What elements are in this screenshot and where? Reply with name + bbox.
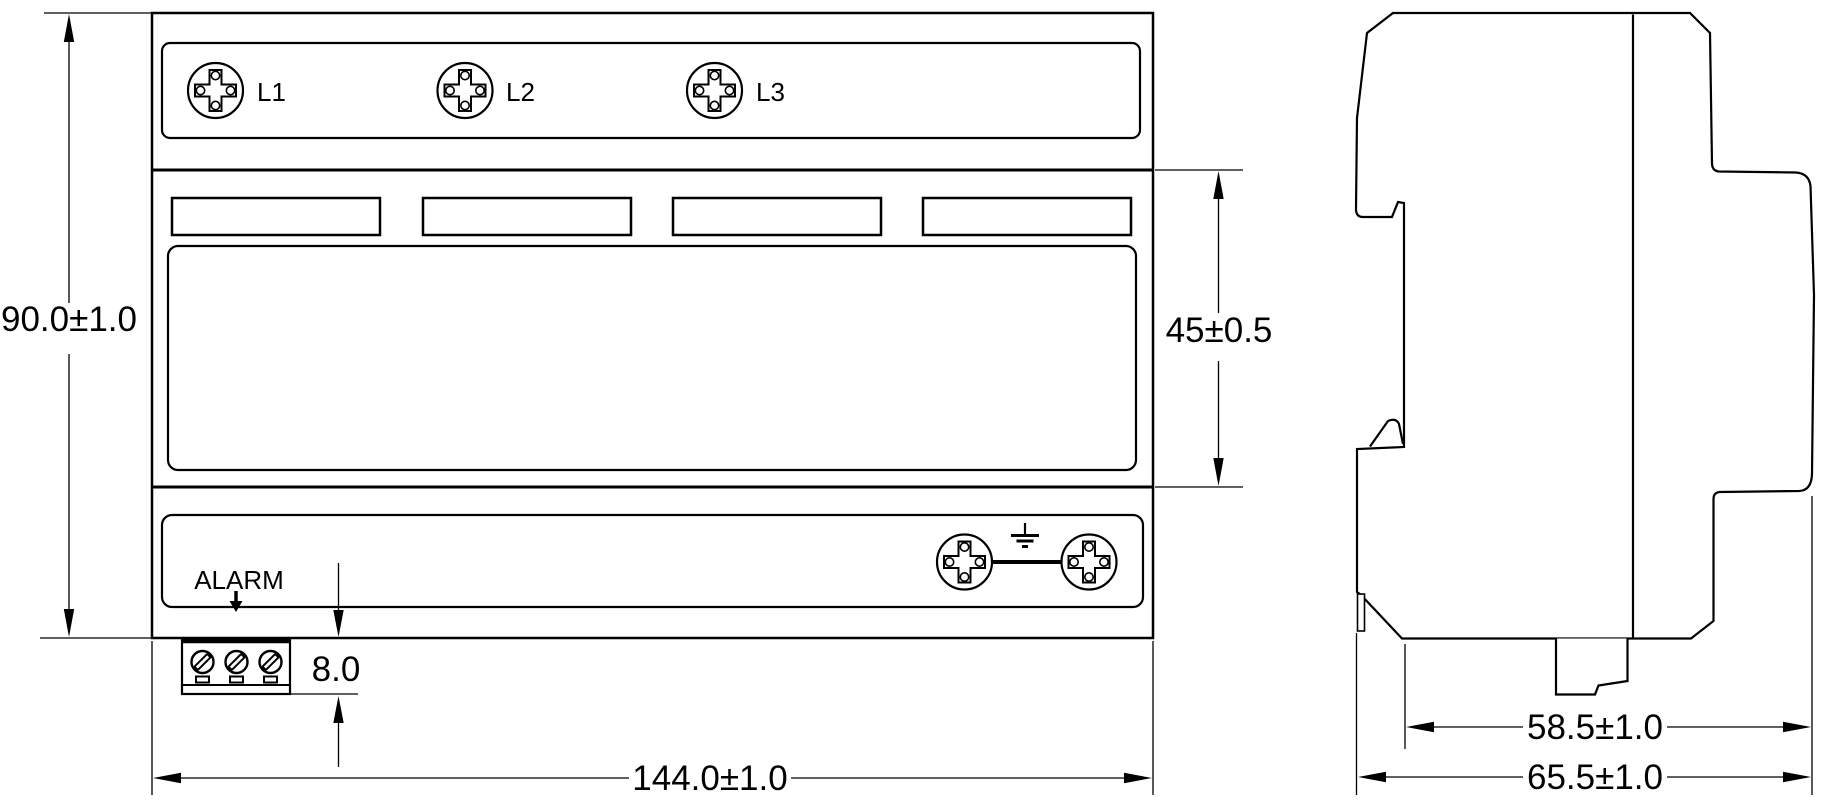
- phase-screw-l3-icon: [687, 63, 742, 118]
- dim-text-overall-depth: 65.5±1.0: [1527, 758, 1663, 797]
- dimension-drawing: L1 L2 L3 ALARM: [0, 0, 1821, 802]
- dim-arrow-right: [1124, 773, 1152, 783]
- dim-text-overall-width: 144.0±1.0: [632, 759, 787, 798]
- terminal-screw-2-icon: [226, 651, 248, 673]
- window-slot-2: [423, 198, 631, 235]
- front-view: L1 L2 L3 ALARM: [152, 13, 1153, 694]
- dim-arrow-left: [1358, 772, 1386, 782]
- terminal-wire-slot-2: [230, 677, 243, 683]
- alarm-label: ALARM: [194, 565, 284, 595]
- terminal-screw-3-icon: [260, 651, 282, 673]
- din-clip-latch-tab: [1358, 594, 1365, 631]
- ground-screw-right-icon: [1062, 535, 1117, 590]
- window-slot-4: [923, 198, 1131, 235]
- alarm-terminal-block: [182, 639, 290, 694]
- din-clip-hook: [1370, 420, 1403, 447]
- terminal-wire-slot-1: [196, 677, 209, 683]
- top-terminal-section: L1 L2 L3: [162, 43, 1140, 138]
- dim-arrow-right: [1783, 772, 1811, 782]
- dim-arrow-left: [1406, 722, 1434, 732]
- bottom-section: ALARM: [162, 515, 1143, 612]
- dim-arrow-left: [153, 773, 181, 783]
- dim-arrow-up: [1213, 171, 1223, 199]
- dim-text-body-depth: 58.5±1.0: [1527, 708, 1663, 747]
- dim-text-overall-height: 90.0±1.0: [1, 300, 137, 339]
- dim-arrow-down: [64, 609, 74, 637]
- ground-screw-left-icon: [937, 535, 992, 590]
- phase-label-l2: L2: [506, 77, 535, 107]
- dim-arrow-right: [1783, 722, 1811, 732]
- dim-arrow-down: [1213, 458, 1223, 486]
- phase-label-l1: L1: [257, 77, 286, 107]
- dim-arrow-up: [64, 14, 74, 42]
- dim-overall-height: 90.0±1.0: [1, 13, 152, 638]
- side-view: [1356, 13, 1814, 695]
- phase-label-l3: L3: [756, 77, 785, 107]
- phase-screw-l2-icon: [438, 63, 493, 118]
- dim-text-terminal-height: 8.0: [312, 650, 361, 689]
- terminal-wire-slot-3: [264, 677, 277, 683]
- dim-middle-section-height: 45±0.5: [1155, 170, 1272, 487]
- label-window: [168, 246, 1136, 470]
- side-profile-outline: [1356, 13, 1814, 639]
- window-slot-3: [673, 198, 881, 235]
- window-slot-1: [172, 198, 380, 235]
- dim-text-middle-height: 45±0.5: [1166, 311, 1273, 350]
- dim-overall-width: 144.0±1.0: [152, 641, 1153, 798]
- dim-arrow-up: [333, 696, 343, 723]
- phase-screw-l1-icon: [188, 63, 243, 118]
- drawing-canvas: L1 L2 L3 ALARM: [0, 0, 1821, 802]
- terminal-screw-1-icon: [192, 651, 214, 673]
- din-clip-foot: [1556, 639, 1628, 695]
- top-terminal-panel: [162, 43, 1140, 138]
